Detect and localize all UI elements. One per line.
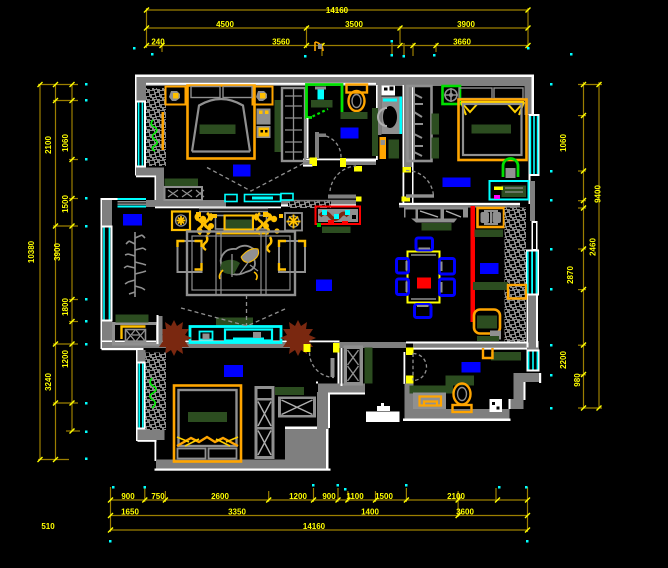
svg-text:1800: 1800 — [61, 298, 70, 316]
svg-text:2870: 2870 — [566, 266, 575, 284]
svg-text:10380: 10380 — [27, 240, 36, 263]
svg-text:2600: 2600 — [211, 492, 229, 501]
svg-text:1650: 1650 — [121, 508, 139, 517]
svg-text:2200: 2200 — [559, 351, 568, 369]
svg-text:3240: 3240 — [44, 373, 53, 391]
svg-text:3500: 3500 — [345, 20, 363, 29]
svg-text:9400: 9400 — [594, 185, 603, 203]
svg-text:750: 750 — [151, 492, 165, 501]
svg-text:1400: 1400 — [361, 508, 379, 517]
svg-text:2100: 2100 — [447, 492, 465, 501]
svg-text:1500: 1500 — [375, 492, 393, 501]
svg-text:1200: 1200 — [61, 350, 70, 368]
svg-text:3900: 3900 — [457, 20, 475, 29]
svg-text:1060: 1060 — [61, 134, 70, 152]
svg-text:3900: 3900 — [53, 243, 62, 261]
svg-text:2100: 2100 — [44, 136, 53, 154]
svg-text:980: 980 — [573, 373, 582, 387]
svg-text:900: 900 — [322, 492, 336, 501]
svg-text:1500: 1500 — [61, 195, 70, 213]
svg-text:240: 240 — [151, 38, 165, 47]
svg-text:14160: 14160 — [326, 6, 349, 15]
svg-text:1200: 1200 — [289, 492, 307, 501]
svg-text:510: 510 — [41, 522, 55, 531]
svg-text:3600: 3600 — [456, 508, 474, 517]
svg-text:4500: 4500 — [216, 20, 234, 29]
svg-text:2460: 2460 — [589, 238, 598, 256]
svg-text:1060: 1060 — [559, 134, 568, 152]
svg-text:3660: 3660 — [453, 38, 471, 47]
svg-text:1100: 1100 — [346, 492, 364, 501]
svg-text:900: 900 — [121, 492, 135, 501]
svg-text:3560: 3560 — [272, 38, 290, 47]
svg-text:3350: 3350 — [228, 508, 246, 517]
svg-text:14160: 14160 — [303, 522, 326, 531]
